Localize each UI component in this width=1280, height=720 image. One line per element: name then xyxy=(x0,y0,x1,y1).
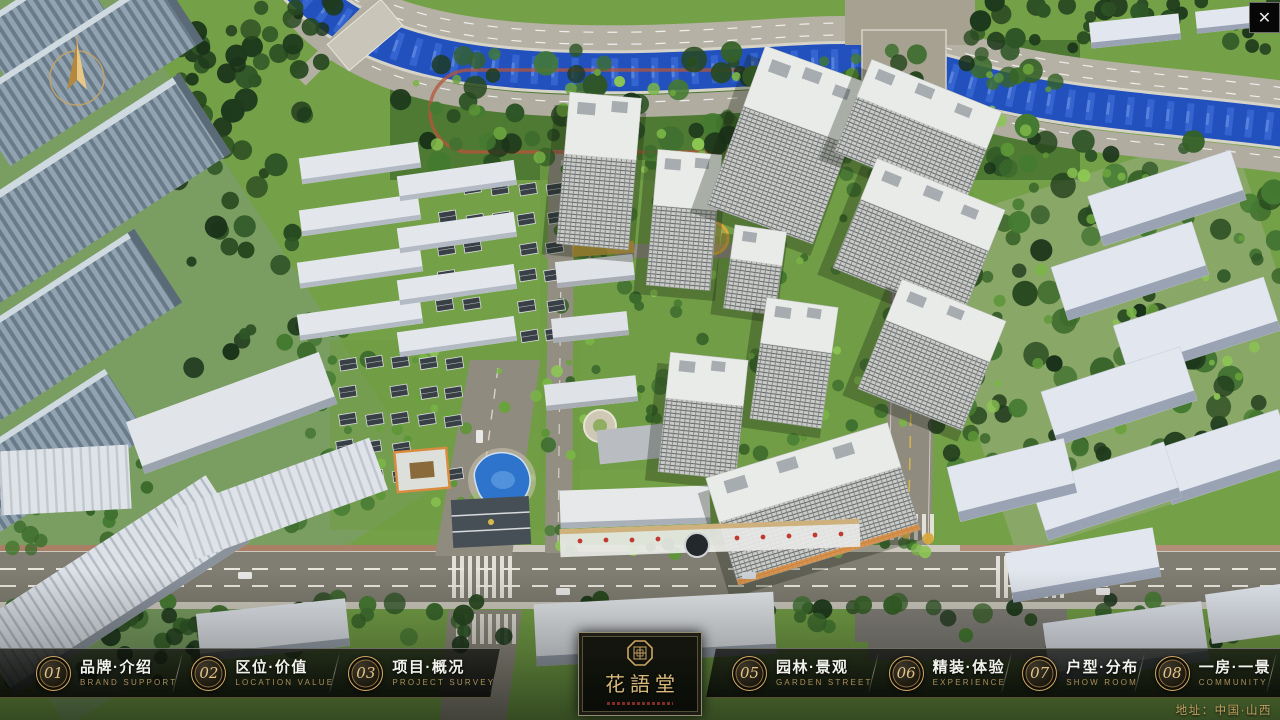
menu-item-label-zh: 区位·价值 xyxy=(235,659,334,676)
project-logo-title: 花語堂 xyxy=(600,668,680,697)
menu-item-label-en: SHOW ROOM xyxy=(1066,678,1139,687)
menu-bar-right: 05 园林·景观 GARDEN STREET 06 精装·体验 EXPERIEN… xyxy=(706,648,1280,698)
item-number-badge: 07 xyxy=(1022,656,1057,691)
menu-item-interior[interactable]: 06 精装·体验 EXPERIENCE xyxy=(873,649,1007,697)
logo-tagline-rule xyxy=(607,702,673,705)
menu-item-label-en: PROJECT SURVEY xyxy=(392,678,495,687)
menu-item-room-view[interactable]: 08 一房·一景 COMMUNITY xyxy=(1139,649,1272,697)
menu-item-label-zh: 园林·景观 xyxy=(776,659,873,676)
menu-item-label-en: LOCATION VALUE xyxy=(235,678,334,687)
item-number-badge: 03 xyxy=(348,656,383,691)
menu-item-location-value[interactable]: 02 区位·价值 LOCATION VALUE xyxy=(177,649,334,697)
masterplan-app: ✕ 01 品牌·介绍 BRAND SUPPORT 02 区位·价值 LOCATI… xyxy=(0,0,1280,720)
menu-item-label-zh: 项目·概况 xyxy=(392,659,495,676)
logo-panel: 花語堂 xyxy=(578,632,702,716)
item-number-badge: 02 xyxy=(191,656,226,691)
menu-item-garden[interactable]: 05 园林·景观 GARDEN STREET xyxy=(706,649,873,697)
close-icon: ✕ xyxy=(1258,8,1271,27)
menu-item-label-zh: 品牌·介绍 xyxy=(80,659,177,676)
menu-bar-left: 01 品牌·介绍 BRAND SUPPORT 02 区位·价值 LOCATION… xyxy=(0,648,500,698)
menu-item-label-zh: 一房·一景 xyxy=(1199,659,1272,676)
menu-bar-spacer xyxy=(1271,649,1280,697)
logo-seal-icon xyxy=(627,640,653,666)
menu-item-label-en: BRAND SUPPORT xyxy=(80,678,177,687)
menu-item-label-en: GARDEN STREET xyxy=(776,678,873,687)
menu-item-unit-layout[interactable]: 07 户型·分布 SHOW ROOM xyxy=(1006,649,1139,697)
item-number-badge: 05 xyxy=(732,656,767,691)
masterplan-render xyxy=(0,0,1280,720)
close-button[interactable]: ✕ xyxy=(1249,2,1280,33)
menu-item-project-survey[interactable]: 03 项目·概况 PROJECT SURVEY xyxy=(334,649,495,697)
menu-item-label-en: COMMUNITY xyxy=(1199,678,1272,687)
item-number-badge: 01 xyxy=(36,656,71,691)
menu-item-label-en: EXPERIENCE xyxy=(933,678,1007,687)
project-address: 地址：中国·山西 xyxy=(1176,702,1272,718)
menu-item-label-zh: 户型·分布 xyxy=(1066,659,1139,676)
item-number-badge: 08 xyxy=(1155,656,1190,691)
item-number-badge: 06 xyxy=(889,656,924,691)
menu-item-label-zh: 精装·体验 xyxy=(933,659,1007,676)
menu-item-brand-intro[interactable]: 01 品牌·介绍 BRAND SUPPORT xyxy=(0,649,177,697)
